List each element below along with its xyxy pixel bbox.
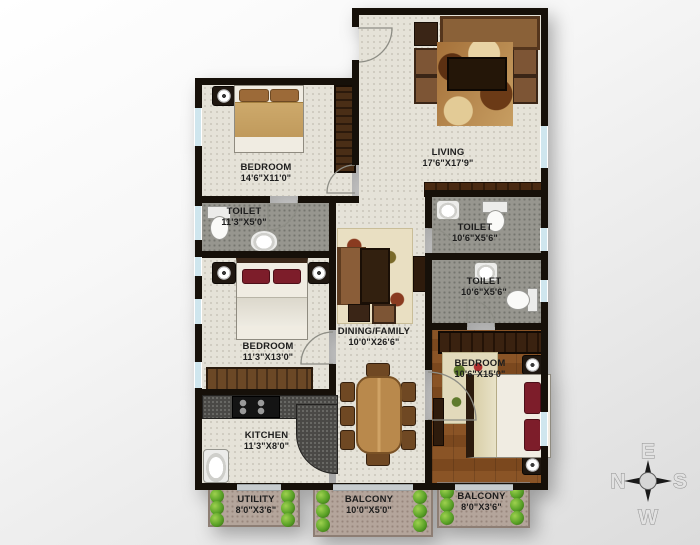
room-dims: 10'0"X26'6"	[314, 337, 434, 348]
window	[194, 362, 202, 388]
room-name: TOILET	[430, 222, 520, 233]
wall	[195, 389, 336, 395]
room-label-toilet1: TOILET 11'3"X5'0"	[199, 206, 289, 228]
compass-right-label: S	[673, 470, 687, 493]
room-dims: 11'3"X13'0"	[203, 352, 333, 363]
room-dims: 11'3"X8'0"	[204, 441, 329, 452]
door-arc-entrance	[358, 28, 392, 62]
balcony-opening	[333, 484, 413, 491]
room-name: BALCONY	[437, 491, 526, 502]
window	[540, 228, 548, 251]
room-name: TOILET	[199, 206, 289, 217]
room-dims: 8'0"X3'6"	[437, 502, 526, 513]
wall	[352, 13, 359, 27]
wall	[425, 420, 432, 490]
door-arc-toilet3	[467, 299, 495, 327]
room-label-balcony2: BALCONY 8'0"X3'6"	[437, 491, 526, 513]
wall	[425, 253, 548, 260]
room-name: UTILITY	[212, 494, 300, 505]
room-name: LIVING	[373, 147, 523, 158]
room-label-toilet3: TOILET 10'6"X5'6"	[439, 276, 529, 298]
window	[540, 412, 548, 446]
wall	[195, 251, 336, 258]
room-name: DINING/FAMILY	[314, 326, 434, 337]
wall	[425, 190, 548, 197]
room-dims: 14'6"X11'0"	[201, 173, 331, 184]
room-label-kitchen: KITCHEN 11'3"X8'0"	[204, 430, 329, 452]
room-dims: 10'6"X5'6"	[430, 233, 520, 244]
room-label-dining-family: DINING/FAMILY 10'0"X26'6"	[314, 326, 434, 348]
compass-top-label: E	[641, 440, 655, 463]
door-arc-bedroom1	[327, 165, 355, 193]
room-name: KITCHEN	[204, 430, 329, 441]
room-dims: 10'0"X5'0"	[316, 505, 422, 516]
room-dims: 8'0"X3'6"	[212, 505, 300, 516]
window	[194, 299, 202, 324]
room-dims: 10'6"X15'0"	[435, 369, 525, 380]
wall	[352, 60, 359, 85]
window	[194, 257, 202, 276]
room-label-balcony1: BALCONY 10'0"X5'0"	[316, 494, 422, 516]
room-dims: 10'6"X5'6"	[439, 287, 529, 298]
window	[194, 108, 202, 146]
room-label-toilet2: TOILET 10'6"X5'6"	[430, 222, 520, 244]
wall	[329, 196, 336, 330]
room-name: TOILET	[439, 276, 529, 287]
window	[540, 280, 548, 302]
wall	[352, 85, 359, 165]
room-label-bedroom3: BEDROOM 10'6"X15'0"	[435, 358, 525, 380]
compass-hub	[640, 473, 657, 490]
room-label-living: LIVING 17'6"X17'9"	[373, 147, 523, 169]
room-dims: 11'3"X5'0"	[199, 217, 289, 228]
floor-plan: BEDROOM 14'6"X11'0" LIVING 17'6"X17'9" T…	[0, 0, 700, 545]
wall	[425, 256, 432, 370]
room-label-bedroom1: BEDROOM 14'6"X11'0"	[201, 162, 331, 184]
balcony-opening	[455, 484, 513, 491]
room-dims: 17'6"X17'9"	[373, 158, 523, 169]
balcony-opening	[237, 484, 281, 491]
compass-left-label: N	[610, 470, 625, 493]
room-label-utility: UTILITY 8'0"X3'6"	[212, 494, 300, 516]
room-name: BALCONY	[316, 494, 422, 505]
compass-icon: E N S W	[598, 436, 698, 528]
window	[540, 126, 548, 168]
room-name: BEDROOM	[201, 162, 331, 173]
compass-bottom-label: W	[638, 506, 658, 528]
wall	[495, 323, 548, 330]
room-name: BEDROOM	[435, 358, 525, 369]
wall	[352, 8, 548, 15]
wall	[195, 78, 359, 85]
wall	[195, 196, 270, 203]
